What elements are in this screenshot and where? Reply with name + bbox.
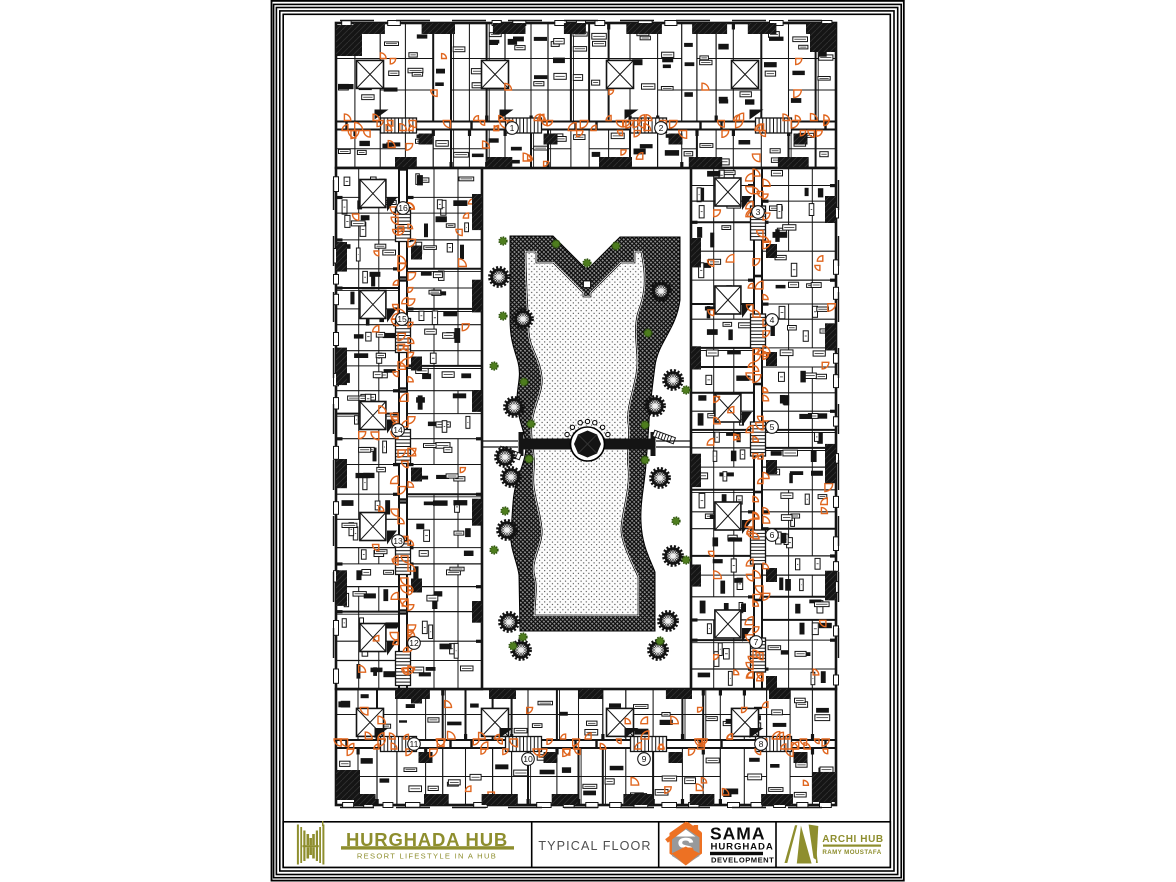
svg-text:SAMA: SAMA: [710, 824, 766, 844]
svg-text:DEVELOPMENT: DEVELOPMENT: [711, 855, 774, 864]
svg-text:ARCHI HUB: ARCHI HUB: [822, 834, 884, 845]
svg-text:RESORT LIFESTYLE IN A HUB: RESORT LIFESTYLE IN A HUB: [357, 852, 497, 861]
svg-text:8: 8: [759, 739, 764, 749]
svg-text:9: 9: [642, 754, 647, 764]
svg-text:16: 16: [398, 203, 408, 213]
svg-text:11: 11: [410, 739, 419, 749]
svg-text:3: 3: [756, 207, 761, 217]
svg-text:RAMY MOUSTAFA: RAMY MOUSTAFA: [822, 849, 881, 856]
svg-text:7: 7: [754, 637, 759, 647]
svg-text:10: 10: [523, 754, 533, 764]
svg-text:4: 4: [770, 315, 775, 325]
svg-text:13: 13: [393, 536, 403, 546]
svg-text:HURGHADA: HURGHADA: [711, 842, 774, 853]
svg-text:2: 2: [659, 123, 664, 133]
svg-text:6: 6: [770, 530, 775, 540]
svg-text:12: 12: [409, 638, 419, 648]
svg-text:1: 1: [510, 123, 515, 133]
svg-text:15: 15: [397, 314, 407, 324]
svg-text:5: 5: [770, 422, 775, 432]
svg-text:TYPICAL FLOOR: TYPICAL FLOOR: [538, 839, 651, 853]
svg-text:14: 14: [393, 425, 403, 435]
